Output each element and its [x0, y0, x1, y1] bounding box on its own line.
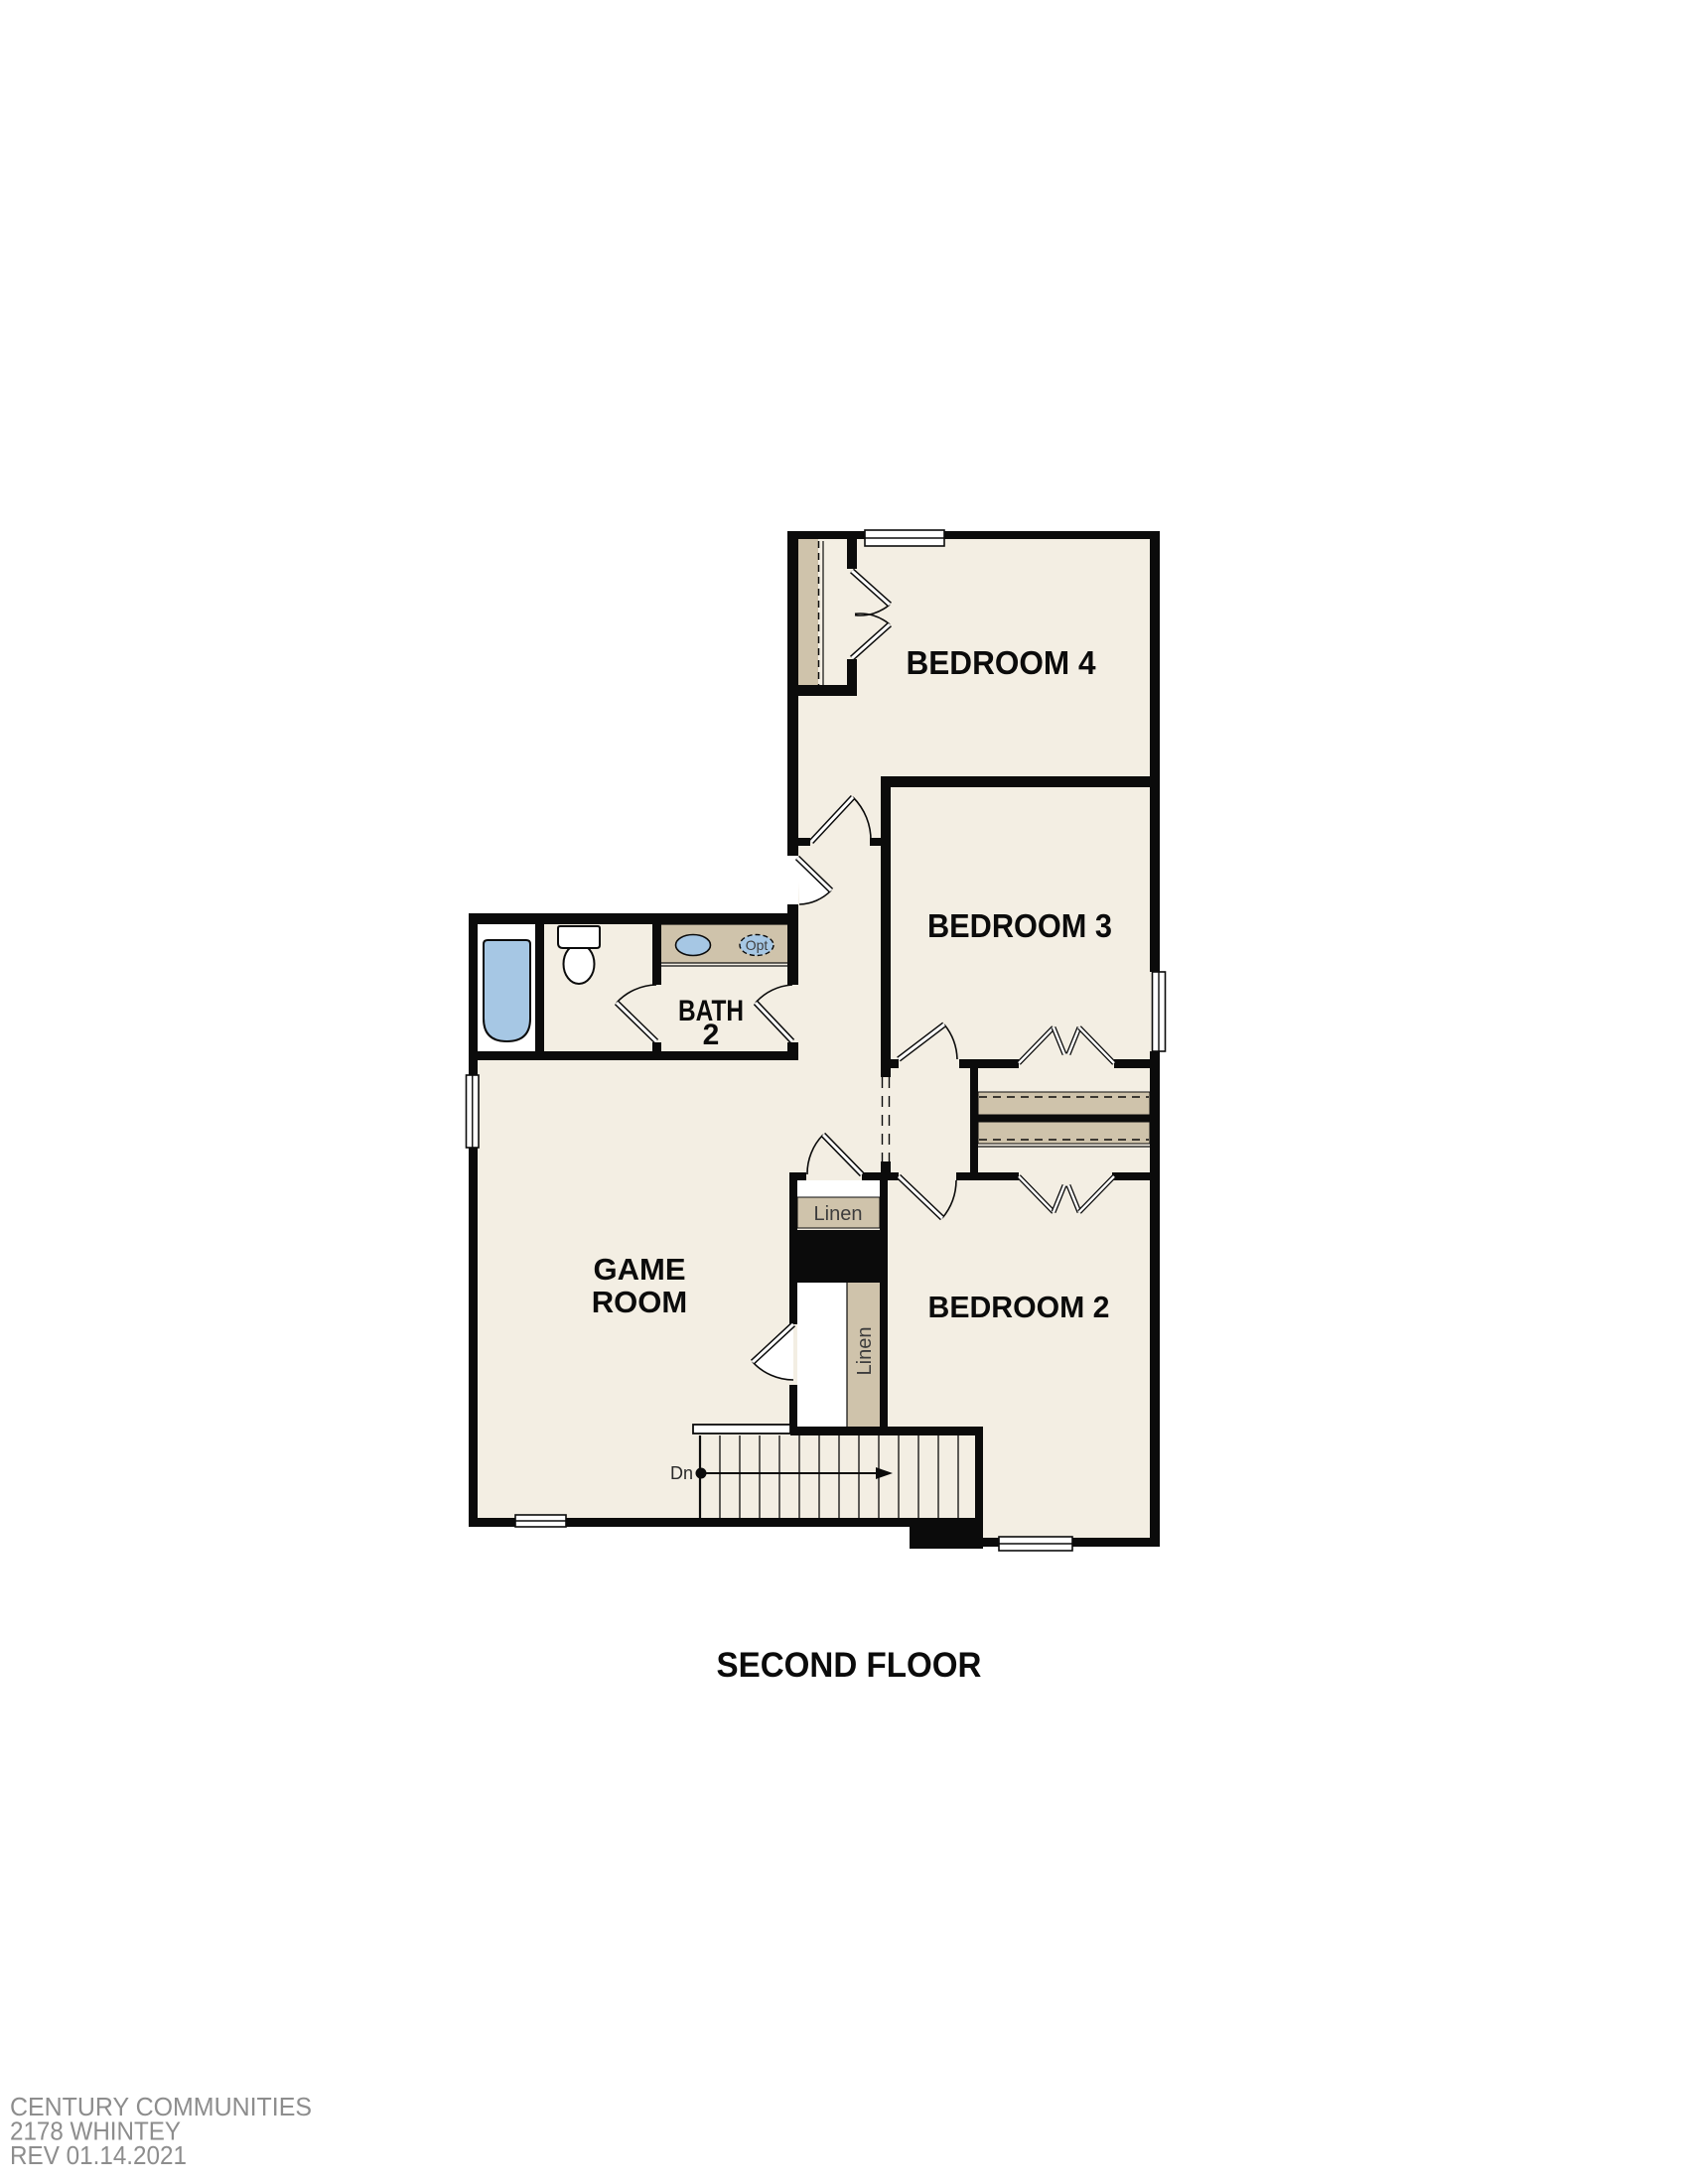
svg-text:Linen: Linen [854, 1327, 876, 1376]
svg-text:REV 01.14.2021: REV 01.14.2021 [10, 2140, 187, 2170]
svg-text:BEDROOM 3: BEDROOM 3 [927, 907, 1112, 944]
svg-text:BEDROOM 4: BEDROOM 4 [907, 644, 1097, 681]
svg-text:SECOND FLOOR: SECOND FLOOR [717, 1646, 982, 1685]
svg-text:Linen: Linen [814, 1203, 863, 1225]
svg-text:BEDROOM 2: BEDROOM 2 [928, 1290, 1110, 1324]
svg-text:Opt: Opt [746, 937, 769, 953]
svg-text:GAME: GAME [594, 1252, 686, 1287]
svg-text:Dn: Dn [670, 1463, 693, 1483]
svg-text:2: 2 [703, 1019, 720, 1051]
svg-text:ROOM: ROOM [592, 1285, 687, 1319]
